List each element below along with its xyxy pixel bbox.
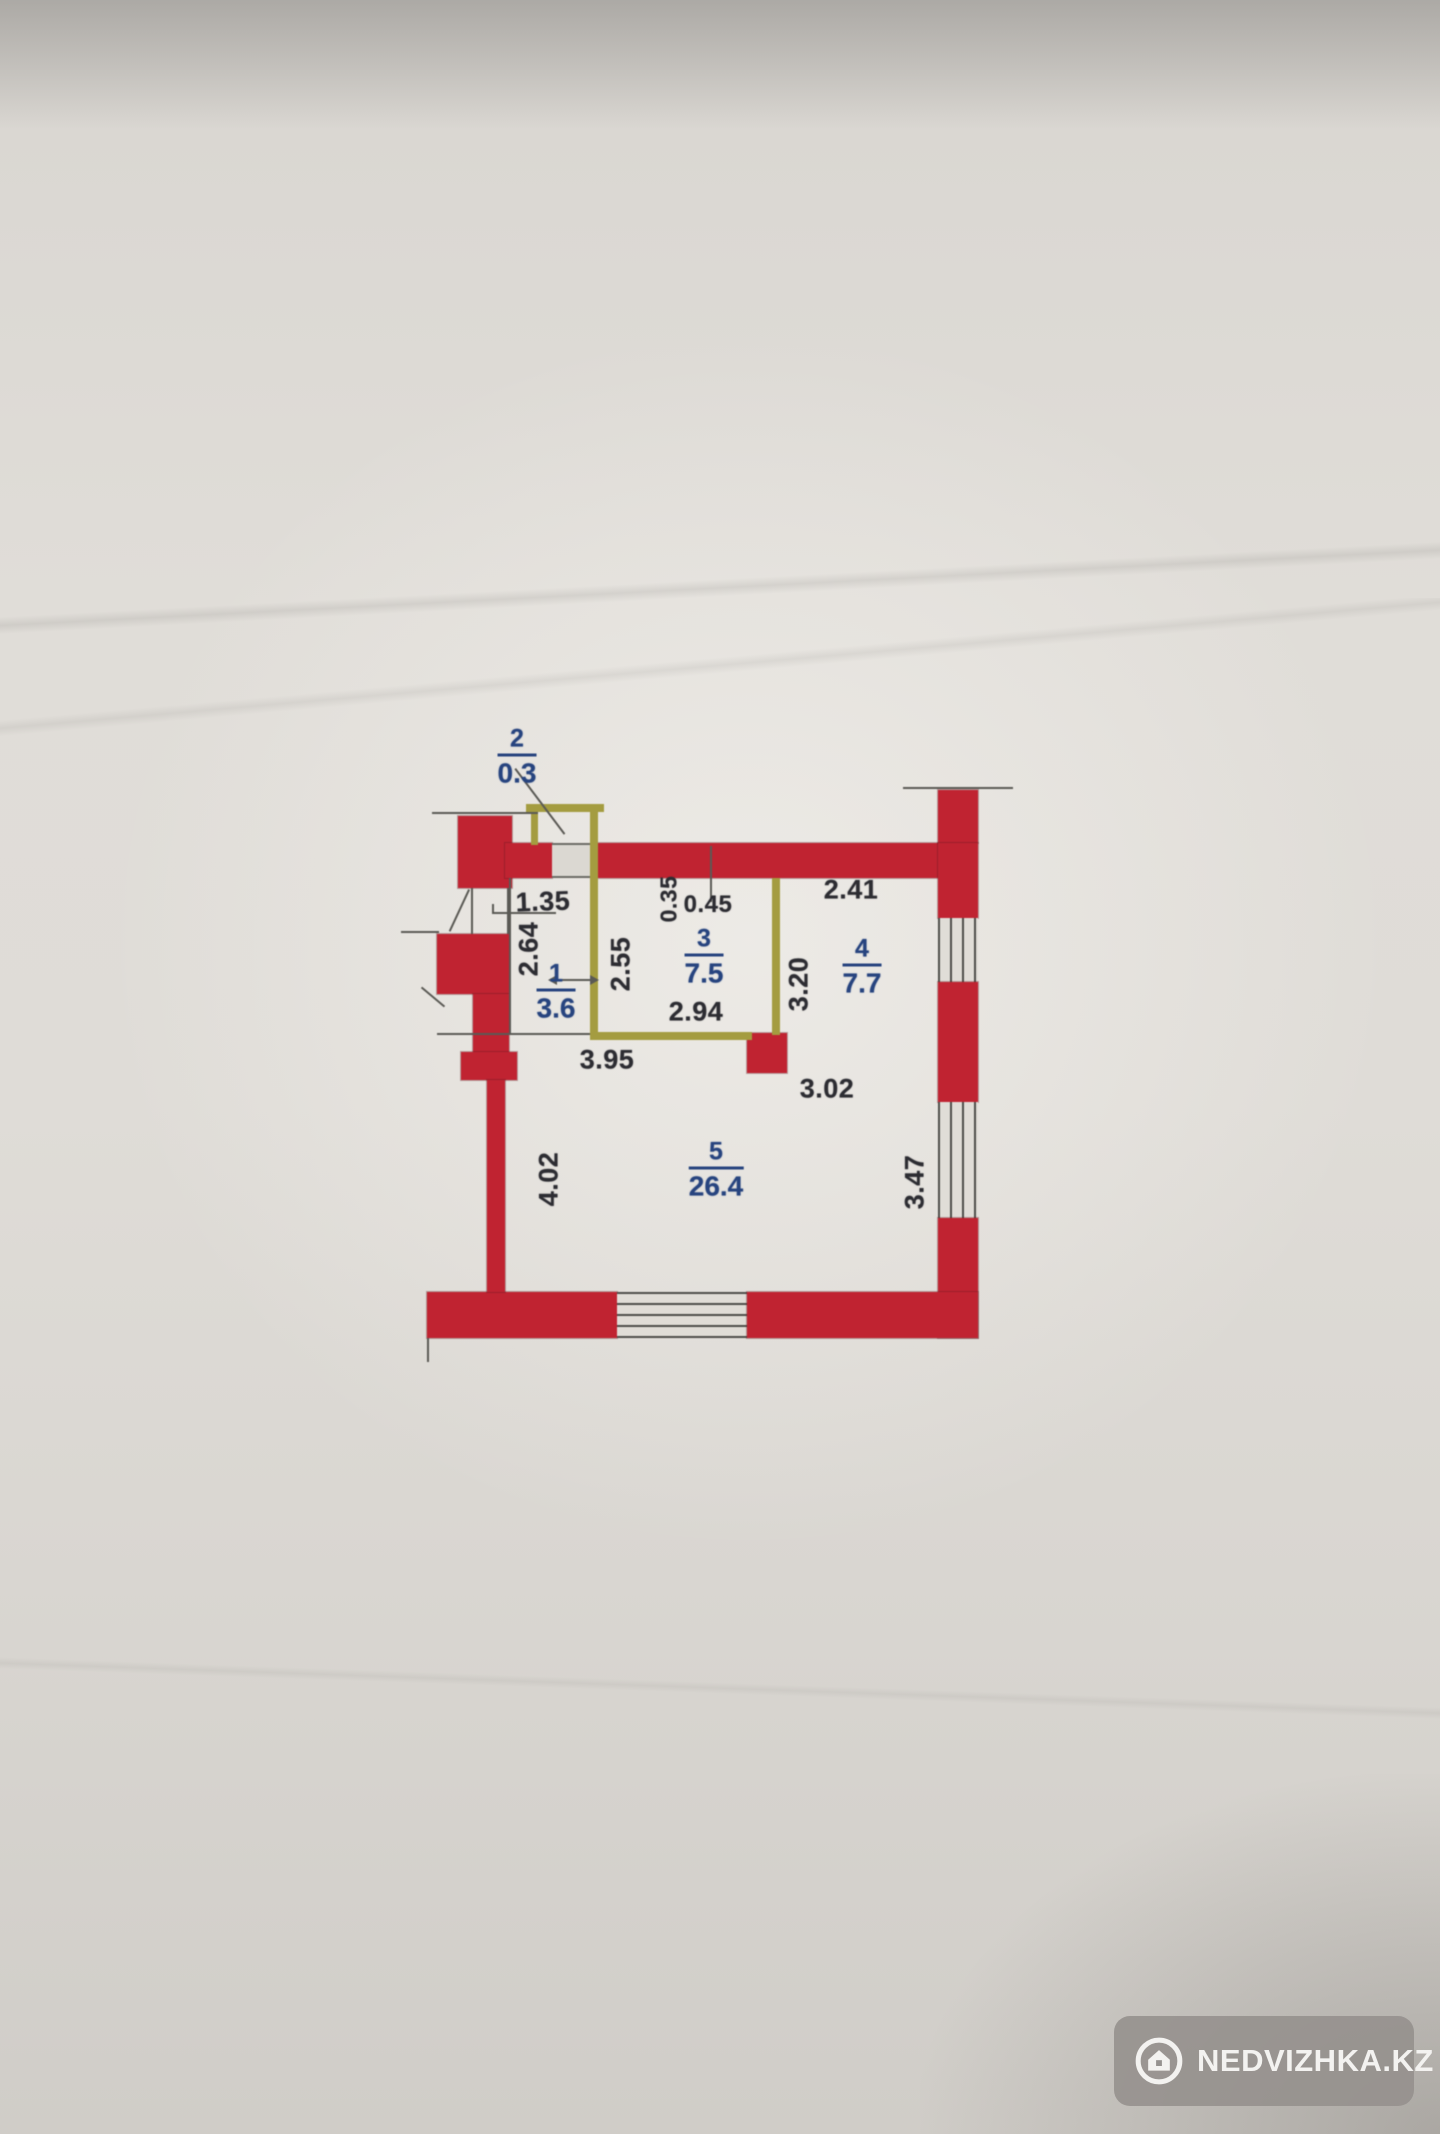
wall-left-narrow: [487, 1080, 505, 1292]
room-area: 7.5: [685, 957, 724, 989]
partition-room3-right: [772, 878, 780, 1035]
watermark-badge: NEDVIZHKA.KZ: [1114, 2016, 1414, 2106]
dimension-balcony-width: 1.35: [515, 886, 571, 919]
room-area: 7.7: [843, 967, 882, 999]
wall-pier-interior: [747, 1033, 787, 1073]
window-room4: [938, 918, 978, 982]
arrow-head-right: [590, 975, 599, 985]
dimension-room4-width: 2.41: [824, 875, 879, 906]
room-label-5: 5 26.4: [689, 1139, 744, 1202]
dimension-room5-inset: 3.02: [800, 1074, 855, 1105]
window-room5-right: [938, 1102, 978, 1218]
partition-room3-bottom: [590, 1032, 752, 1040]
wall-top-left-segment: [505, 843, 552, 878]
room-label-3: 3 7.5: [685, 926, 724, 989]
room-number: 2: [498, 726, 537, 757]
dimension-room5-left: 4.02: [534, 1152, 565, 1207]
wall-top-main: [596, 843, 938, 878]
room-number: 4: [843, 936, 882, 967]
dimension-room4-depth: 3.20: [784, 957, 815, 1012]
room-label-2: 2 0.3: [498, 726, 537, 789]
wall-pier-top-left: [458, 816, 512, 888]
entry-door-swing: [449, 889, 470, 932]
window-room5-bottom: [617, 1292, 747, 1338]
floor-plan: 1.35 0.45 2.41 2.94 3.95 3.02 2.64 2.55 …: [0, 0, 1440, 2134]
dimension-room3-left: 2.55: [606, 937, 637, 992]
cap-line-top-right: [903, 787, 1013, 789]
room-label-1: 1 3.6: [537, 961, 576, 1024]
room-number: 5: [689, 1139, 744, 1170]
wall-left-band: [473, 994, 509, 1052]
partition-balcony-left: [531, 812, 538, 845]
dimension-tick: [492, 904, 494, 914]
wall-right-upper: [938, 843, 978, 918]
wall-right-middle: [938, 982, 978, 1102]
wall-bottom-right-segment: [747, 1292, 978, 1338]
partition-room3-left: [590, 804, 598, 1040]
wall-pier-entry: [437, 934, 509, 994]
dimension-room3-width: 2.94: [669, 997, 724, 1028]
wall-pier-small: [461, 1052, 517, 1080]
room-label-4: 4 7.7: [843, 936, 882, 999]
watermark-label: NEDVIZHKA.KZ: [1197, 2043, 1434, 2079]
wall-bottom-left-segment: [427, 1292, 617, 1338]
dimension-room5-right: 3.47: [900, 1155, 931, 1210]
room-number: 1: [537, 961, 576, 992]
dimension-niche-depth: 0.35: [656, 876, 683, 923]
dimension-tick: [401, 931, 439, 933]
house-icon: [1134, 2036, 1184, 2086]
dimension-niche-width: 0.45: [684, 891, 733, 919]
room-number: 3: [685, 926, 724, 957]
room-area: 3.6: [537, 992, 576, 1024]
room1-boundary-right: [509, 878, 511, 1034]
room-area: 26.4: [689, 1170, 744, 1202]
dimension-tick: [427, 1338, 429, 1362]
room1-boundary-bottom: [437, 1033, 590, 1035]
dimension-hall-width: 3.95: [580, 1045, 635, 1076]
cap-line-top-left: [432, 812, 538, 814]
wall-right-top-extension: [938, 790, 978, 843]
entry-door-jamb: [471, 888, 473, 934]
room-area: 0.3: [498, 757, 537, 789]
